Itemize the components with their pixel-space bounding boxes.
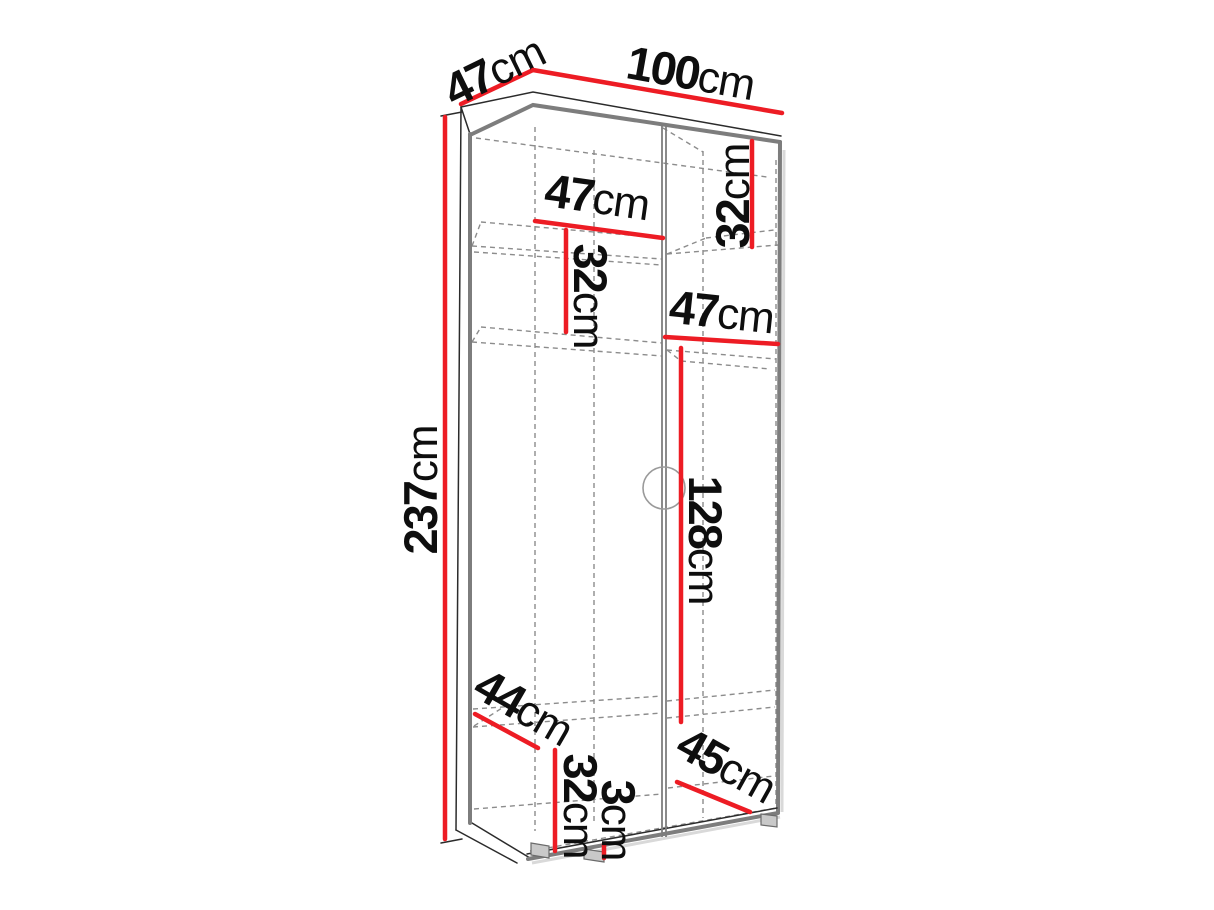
dimension-label-upper-shelf-height-right: 32cm: [706, 144, 759, 249]
dimension-label-height-left: 237cm: [394, 425, 447, 554]
dimension-upper-shelf-width-left: 47cm: [535, 163, 663, 238]
dimension-label-shelf-width-right: 47cm: [667, 280, 777, 344]
dimension-label-upper-shelf-width-left: 47cm: [542, 163, 653, 230]
dimension-label-upper-shelf-height-left: 32cm: [564, 244, 617, 349]
dimension-label-plinth-gap-height: 3cm: [592, 780, 645, 861]
dimension-middle-section-height: 128cm: [679, 348, 732, 722]
door-handle-hole: [643, 467, 685, 509]
foot-left: [531, 843, 549, 858]
dimension-label-width-top: 100cm: [623, 35, 759, 110]
wardrobe-dimension-diagram: 47cm 100cm 237cm 47cm 32cm 32cm 47cm 128…: [0, 0, 1214, 910]
top-front-edges: [470, 105, 780, 142]
left-bottom-inner-edge: [472, 823, 530, 858]
dimension-bottom-depth-left: 44cm: [466, 658, 583, 756]
right-front-edge: [778, 142, 780, 812]
dimension-label-bottom-shelf-width-right: 45cm: [668, 716, 785, 813]
dimension-label-middle-section-height: 128cm: [679, 475, 732, 604]
door-gap: [643, 126, 685, 837]
dimension-upper-shelf-height-left: 32cm: [564, 230, 617, 348]
dimension-bottom-shelf-width-right: 45cm: [668, 716, 785, 813]
left-bottom-outer-edge: [456, 830, 517, 863]
dimension-height-left: 237cm: [394, 117, 447, 839]
dimension-plinth-gap-height: 3cm: [592, 780, 645, 861]
left-back-edge: [456, 107, 461, 830]
foot-right: [761, 814, 777, 827]
dimension-shelf-width-right: 47cm: [665, 280, 778, 344]
diagram-canvas: 47cm 100cm 237cm 47cm 32cm 32cm 47cm 128…: [0, 0, 1214, 910]
dimension-width-top: 100cm: [533, 35, 782, 113]
dimension-upper-shelf-height-right: 32cm: [706, 141, 759, 248]
